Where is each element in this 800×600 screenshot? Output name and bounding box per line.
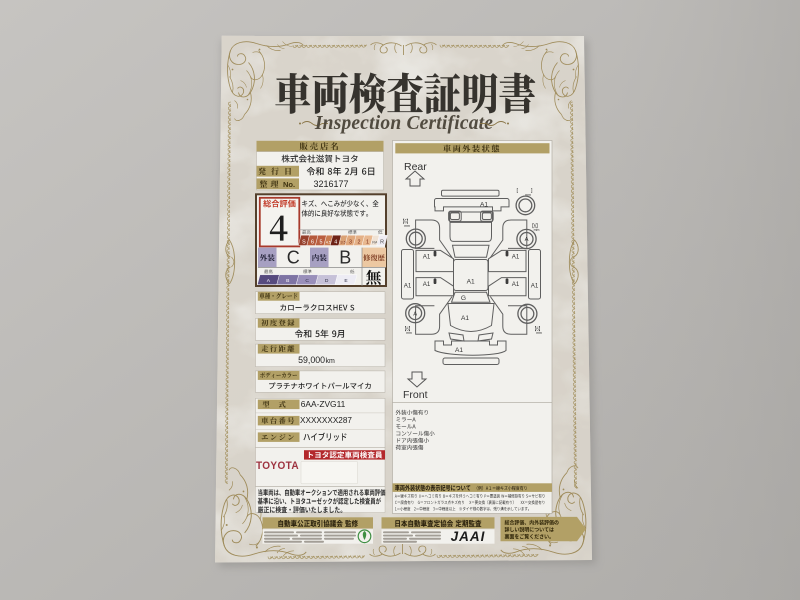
svg-text:Front: Front <box>403 389 428 401</box>
svg-text:A1: A1 <box>512 254 520 261</box>
svg-text:6AA-ZVG11: 6AA-ZVG11 <box>301 399 346 409</box>
svg-text:G: G <box>461 295 466 302</box>
svg-text:1: 1 <box>366 240 369 246</box>
svg-text:A1: A1 <box>461 315 469 322</box>
svg-text:A1: A1 <box>512 281 520 288</box>
svg-text:mm: mm <box>534 228 540 232</box>
svg-text:A1: A1 <box>423 281 431 288</box>
svg-text:C: C <box>287 248 300 268</box>
svg-text:S: S <box>302 240 306 246</box>
svg-text:A: A <box>413 311 417 317</box>
svg-text:D: D <box>325 278 329 284</box>
svg-text:A1: A1 <box>531 283 539 290</box>
svg-text:R: R <box>380 240 384 246</box>
svg-text:mm: mm <box>525 193 531 197</box>
svg-text:A1: A1 <box>404 283 412 290</box>
svg-text:Inspection Certificate: Inspection Certificate <box>314 113 493 134</box>
svg-text:A: A <box>525 237 529 243</box>
svg-text:km: km <box>326 358 336 365</box>
svg-text:3216177: 3216177 <box>313 179 348 189</box>
svg-text:6: 6 <box>311 240 314 246</box>
svg-text:2: 2 <box>358 240 361 246</box>
svg-text:59,000: 59,000 <box>298 355 325 365</box>
svg-text:3.5: 3.5 <box>341 241 346 245</box>
svg-text:A1: A1 <box>467 278 475 285</box>
svg-text:mm: mm <box>536 331 542 335</box>
svg-text:mm: mm <box>404 224 410 228</box>
svg-text:C: C <box>305 278 309 284</box>
svg-text:5: 5 <box>319 240 322 246</box>
svg-text:JAAI: JAAI <box>451 529 486 544</box>
svg-text:XXXXXXX287: XXXXXXX287 <box>300 416 352 425</box>
svg-text:B: B <box>339 248 351 268</box>
svg-text:TOYOTA: TOYOTA <box>256 461 299 472</box>
svg-text:No.: No. <box>283 180 295 189</box>
svg-text:A1: A1 <box>455 347 463 354</box>
svg-text:mm: mm <box>406 331 412 335</box>
svg-text:A1: A1 <box>423 254 431 261</box>
svg-text:3: 3 <box>349 240 352 246</box>
svg-text:4: 4 <box>334 240 337 246</box>
svg-text:4.5: 4.5 <box>326 241 331 245</box>
svg-text:B: B <box>286 278 289 284</box>
svg-text:A1: A1 <box>480 201 488 208</box>
